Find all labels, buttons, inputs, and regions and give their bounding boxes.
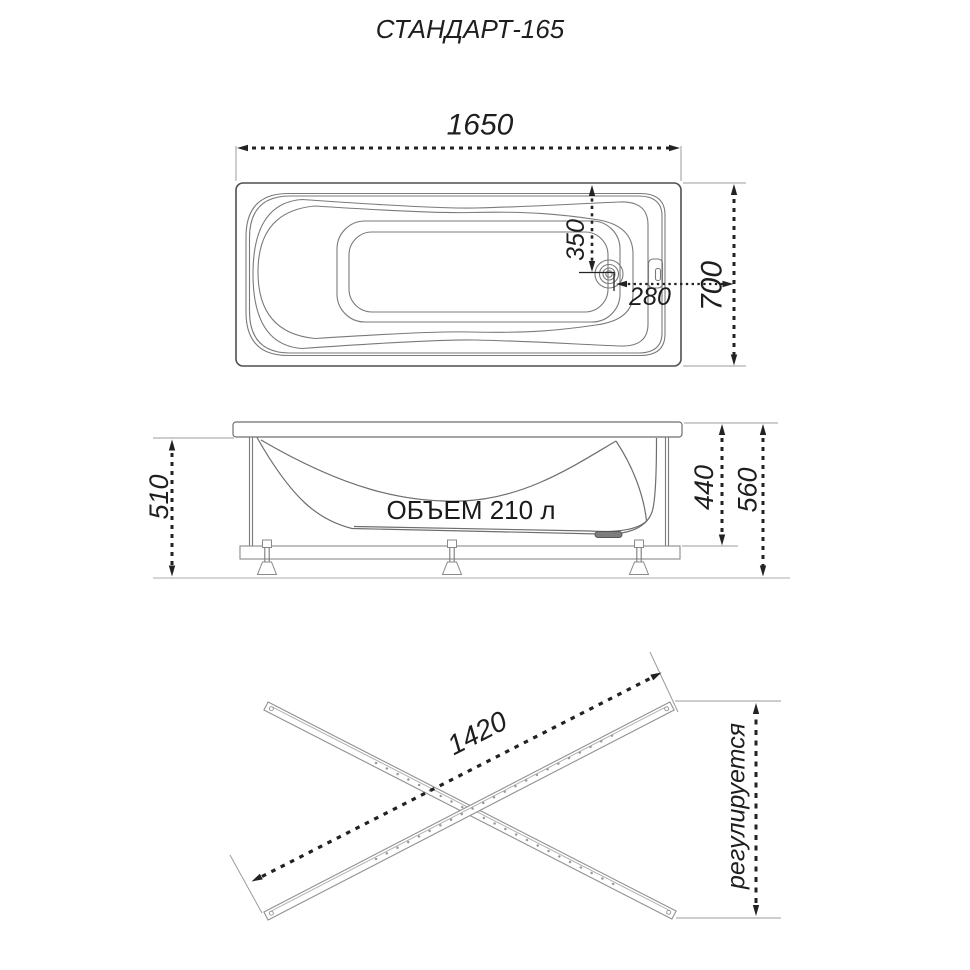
extension-line-slanted	[650, 652, 678, 712]
arrowhead-right	[669, 145, 680, 151]
side-view: ОБЪЕМ 210 л 510 440 560	[144, 422, 790, 578]
dim-label-drain-y: 350	[562, 219, 590, 261]
frame-base-rail	[240, 546, 680, 559]
arrowhead-up	[169, 440, 175, 451]
arrowhead-right	[650, 673, 661, 681]
arrowhead-down	[753, 905, 759, 916]
foot-base	[258, 562, 277, 575]
top-view: 1650 700 350 280	[236, 109, 746, 367]
foot-base	[630, 562, 649, 575]
technical-drawing-page: СТАНДАРТ-165 1650 700 350	[0, 0, 970, 970]
foot-nut	[635, 540, 644, 548]
foot-base	[443, 562, 462, 575]
dim-label-adjustable: регулируется	[723, 723, 751, 890]
dim-line-rail-length	[262, 678, 652, 877]
extension-line-slanted	[230, 855, 262, 913]
foot-nut	[263, 540, 272, 548]
arrowhead-down	[760, 566, 766, 577]
tub-interior-curve	[261, 440, 616, 501]
arrowhead-up	[719, 424, 725, 435]
arrowhead-up	[731, 184, 737, 195]
arrowhead-down	[731, 355, 737, 366]
page-title: СТАНДАРТ-165	[376, 14, 565, 44]
drain-outlet	[595, 532, 622, 538]
volume-label: ОБЪЕМ 210 л	[387, 495, 556, 525]
dim-label-skirt-height: 510	[144, 474, 174, 519]
dim-label-depth: 440	[689, 465, 719, 510]
arrowhead-down	[719, 535, 725, 546]
arrowhead-up	[760, 424, 766, 435]
arrowhead-up	[753, 703, 759, 714]
arrowhead-left	[237, 145, 248, 151]
arrowhead-left	[252, 874, 263, 882]
tub-inner-wall-right	[616, 441, 647, 521]
dim-label-length: 1650	[447, 109, 514, 142]
bathtub-drawing: СТАНДАРТ-165 1650 700 350	[0, 0, 970, 970]
bottom-view: 1420 регулируется	[230, 652, 781, 920]
dim-label-total-height: 560	[733, 467, 763, 512]
dim-label-drain-x: 280	[628, 283, 671, 311]
dim-label-rail-length: 1420	[442, 705, 512, 761]
tub-rim-bar	[233, 422, 682, 437]
arrowhead-down	[169, 566, 175, 577]
foot-nut	[448, 540, 457, 548]
